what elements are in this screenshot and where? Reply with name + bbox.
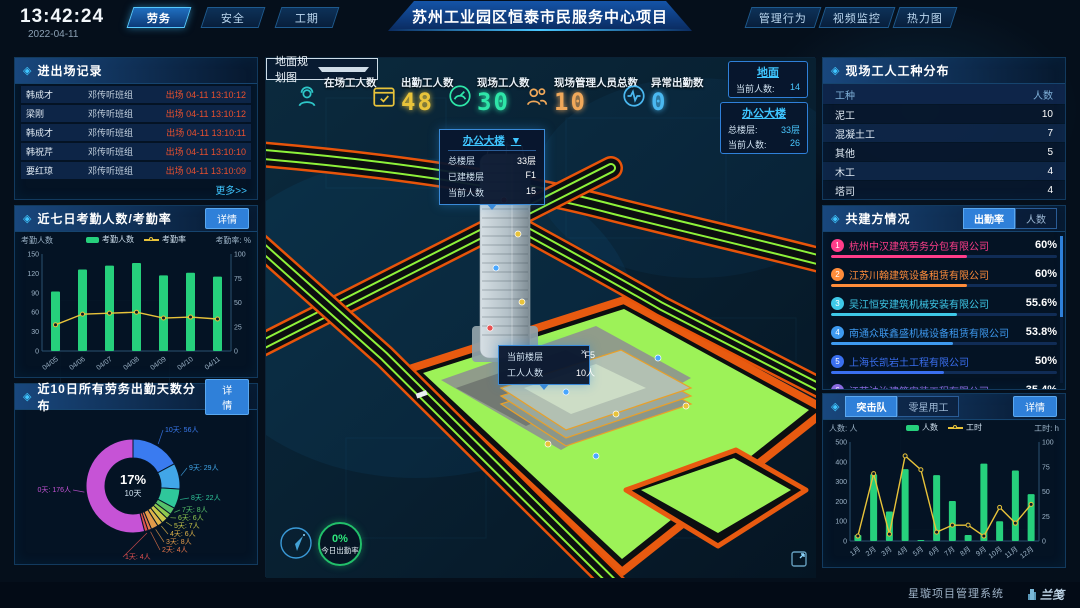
svg-text:100: 100 <box>835 519 847 526</box>
logo-icon <box>1027 588 1037 601</box>
svg-text:04/09: 04/09 <box>149 356 167 372</box>
rank-badge: 4 <box>831 326 844 339</box>
popup-value: F1 <box>525 170 536 183</box>
popup-label: 当前人数 <box>448 186 484 199</box>
svg-text:2天: 4人: 2天: 4人 <box>162 546 188 554</box>
table-row: 其他5 <box>823 143 1065 161</box>
worker-count: 4 <box>993 166 1053 177</box>
fullscreen-icon[interactable] <box>790 550 808 568</box>
building-popup: 办公大楼 ▼ 总楼层33层 已建楼层F1 当前人数15 <box>439 129 545 205</box>
panel-header: ◈ 进出场记录 <box>15 58 257 84</box>
detail-button[interactable]: 详情 <box>205 208 249 229</box>
panel-title: 进出场记录 <box>37 62 102 79</box>
exit-event: 出场 04-11 13:10:12 <box>134 88 246 101</box>
stat-abnormal-attendance: 异常出勤数0 <box>621 75 704 114</box>
company-row[interactable]: 1杭州中汉建筑劳务分包有限公司60% <box>831 235 1057 264</box>
worker-types-panel: ◈ 现场工人工种分布 工种 人数 泥工10 混凝土工7 其他5 木工4 塔司4 <box>822 57 1066 200</box>
tab-assault-team[interactable]: 突击队 <box>845 396 897 417</box>
svg-text:0: 0 <box>1042 539 1046 546</box>
line-swatch-icon <box>948 427 963 429</box>
svg-text:25: 25 <box>234 324 242 331</box>
svg-text:04/05: 04/05 <box>41 356 59 372</box>
svg-text:75: 75 <box>1042 464 1050 471</box>
table-row: 混凝土工7 <box>823 124 1065 142</box>
panel-header: ◈ 现场工人工种分布 <box>823 58 1065 84</box>
stat-site-workers: 现场工人数30 <box>447 75 530 114</box>
logo-text: 兰笺 <box>1040 586 1064 603</box>
worker-type: 其他 <box>835 145 993 160</box>
badge-label: 总楼层: <box>728 123 758 136</box>
column-header: 人数 <box>993 87 1053 102</box>
tooltip-label: 工人人数 <box>507 366 543 379</box>
bar-swatch-icon <box>906 425 919 431</box>
company-row[interactable]: 2江苏川翰建筑设备租赁有限公司60% <box>831 264 1057 293</box>
company-row[interactable]: 3吴江恒安建筑机械安装有限公司55.6% <box>831 293 1057 322</box>
progress-bar <box>831 371 1057 374</box>
attendance-chart-area: 考勤人数 考勤率: % 考勤人数 考勤率 0306090120150025507… <box>15 232 257 379</box>
stat-value: 30 <box>477 90 530 114</box>
svg-text:7天: 8人: 7天: 8人 <box>182 506 208 514</box>
entry-exit-row: 韩祝芹邓传听班组出场 04-11 13:10:10 <box>21 143 251 160</box>
badge-value: 26 <box>790 138 800 151</box>
svg-text:60: 60 <box>31 310 39 317</box>
svg-text:120: 120 <box>27 271 39 278</box>
worker-count: 4 <box>993 185 1053 196</box>
close-icon[interactable]: × <box>581 347 586 357</box>
chart-legend: 人数 工时 <box>823 422 1065 433</box>
diamond-icon: ◈ <box>23 390 31 403</box>
more-link[interactable]: 更多>> <box>15 182 247 197</box>
tab-labor[interactable]: 劳务 <box>127 7 192 28</box>
stat-attendance-workers: 出勤工人数48 <box>371 75 454 114</box>
worker-count: 7 <box>993 128 1053 139</box>
stat-value: 0 <box>651 90 704 114</box>
progress-bar <box>831 342 1057 345</box>
clock-time: 13:42:24 <box>20 6 104 28</box>
table-row: 木工4 <box>823 162 1065 180</box>
svg-text:12月: 12月 <box>1019 545 1036 560</box>
rank-badge: 2 <box>831 268 844 281</box>
panel-header: ◈ 近七日考勤人数/考勤率 详情 <box>15 206 257 232</box>
svg-text:2月: 2月 <box>864 545 878 558</box>
svg-text:11月: 11月 <box>1003 545 1019 560</box>
detail-button[interactable]: 详情 <box>1013 396 1057 417</box>
worker-type: 混凝土工 <box>835 126 993 141</box>
tab-odd-jobs[interactable]: 零星用工 <box>897 396 959 417</box>
legend-item: 考勤率 <box>144 234 186 245</box>
co-builders-panel: ◈ 共建方情况 出勤率 人数 1杭州中汉建筑劳务分包有限公司60% 2江苏川翰建… <box>822 205 1066 390</box>
floor-tooltip: × 当前楼层F5 工人人数10人 <box>498 345 590 385</box>
worker-count: 10 <box>993 109 1053 120</box>
worker-name: 梁刚 <box>26 107 88 120</box>
svg-text:3月: 3月 <box>880 545 894 558</box>
popup-label: 已建楼层 <box>448 170 484 183</box>
company-row[interactable]: 4南通众联鑫盛机械设备租赁有限公司53.8% <box>831 322 1057 351</box>
donut-chart: 10天: 56人9天: 29人8天: 22人7天: 8人6天: 6人5天: 7人… <box>15 410 257 564</box>
svg-text:200: 200 <box>835 499 847 506</box>
svg-text:1月: 1月 <box>849 545 863 558</box>
exit-event: 出场 04-11 13:10:09 <box>134 164 246 177</box>
footer: 星璇项目管理系统 兰笺 <box>0 582 1080 608</box>
attendance-gauge: 0% 今日出勤率 <box>318 522 362 566</box>
tooltip-value: F5 <box>584 350 595 363</box>
company-value: 35.4% <box>1026 384 1057 390</box>
assault-chart-area: 人数: 人 工时: h 人数 工时 0100200300400500025507… <box>823 420 1065 569</box>
worker-type: 泥工 <box>835 107 993 122</box>
worker-name: 韩成才 <box>26 88 88 101</box>
worker-name: 韩祝芹 <box>26 145 88 158</box>
attendance-combo-chart: 0306090120150025507510004/0504/0604/0704… <box>16 246 258 377</box>
work-group: 邓传听班组 <box>88 88 134 101</box>
worker-name: 韩成才 <box>26 126 88 139</box>
tab-video-monitor[interactable]: 视频监控 <box>819 7 896 28</box>
svg-text:5月: 5月 <box>912 545 926 558</box>
company-value: 50% <box>1035 355 1057 367</box>
svg-text:150: 150 <box>27 252 39 259</box>
svg-text:1天: 4人: 1天: 4人 <box>125 553 151 561</box>
topbar: 13:42:24 2022-04-11 劳务 安全 工期 苏州工业园区恒泰市民服… <box>0 0 1080 42</box>
progress-bar <box>831 313 1057 316</box>
chevron-down-icon <box>318 67 369 72</box>
panel-header: ◈ 近10日所有劳务出勤天数分布 详情 <box>15 384 257 410</box>
people-icon <box>524 83 550 109</box>
line-swatch-icon <box>144 239 159 241</box>
gauge-label: 今日出勤率 <box>321 545 359 556</box>
compass-icon[interactable] <box>279 526 313 560</box>
svg-text:75: 75 <box>234 276 242 283</box>
svg-text:04/06: 04/06 <box>68 356 86 372</box>
company-name: 上海长凯岩土工程有限公司 <box>849 354 1029 369</box>
company-value: 53.8% <box>1026 326 1057 338</box>
company-value: 60% <box>1035 239 1057 251</box>
tooltip-value: 10人 <box>576 366 595 379</box>
panel-title: 共建方情况 <box>845 210 910 227</box>
svg-text:9天: 29人: 9天: 29人 <box>189 464 219 472</box>
progress-bar <box>831 284 1057 287</box>
legend-item: 人数 <box>906 422 938 433</box>
svg-text:90: 90 <box>31 290 39 297</box>
badge-value: 33层 <box>781 123 800 136</box>
scrollbar <box>1060 236 1063 383</box>
svg-text:50: 50 <box>1042 489 1050 496</box>
company-value: 55.6% <box>1026 297 1057 309</box>
tab-label: 工期 <box>295 10 319 26</box>
panel-header: ◈ 突击队 零星用工 详情 <box>823 394 1065 420</box>
entry-exit-list: 韩成才邓传听班组出场 04-11 13:10:12 梁刚邓传听班组出场 04-1… <box>15 86 257 197</box>
tab-management-behavior[interactable]: 管理行为 <box>745 7 822 28</box>
company-row[interactable]: 5上海长凯岩土工程有限公司50% <box>831 351 1057 380</box>
badge-label: 当前人数: <box>728 138 767 151</box>
svg-text:500: 500 <box>835 440 847 447</box>
calendar-check-icon <box>371 83 397 109</box>
stat-label: 在场工人数 <box>324 75 377 90</box>
page-title-text: 苏州工业园区恒泰市民服务中心项目 <box>412 6 668 27</box>
legend-label: 工时 <box>966 423 982 432</box>
ground-badge[interactable]: 地面 当前人数:14 <box>728 61 808 98</box>
company-row[interactable]: 6江苏法诒建筑安装工程有限公司35.4% <box>831 380 1057 390</box>
tooltip-label: 当前楼层 <box>507 350 543 363</box>
page-title: 苏州工业园区恒泰市民服务中心项目 <box>388 1 692 31</box>
map-area: 地面规划图 在场工人数 出勤工人数48 现场工人数30 现场管理人员总数10 异… <box>265 57 815 577</box>
brand-text: 星璇项目管理系统 <box>908 585 1004 601</box>
badge-title: 办公大楼 <box>728 105 800 121</box>
svg-text:50: 50 <box>234 300 242 307</box>
clock-date: 2022-04-11 <box>28 29 104 40</box>
svg-text:04/08: 04/08 <box>122 356 140 372</box>
entry-exit-row: 韩成才邓传听班组出场 04-11 13:10:12 <box>21 86 251 103</box>
worker-type: 木工 <box>835 164 993 179</box>
tab-label: 管理行为 <box>759 10 807 26</box>
donut-chart-area: 10天: 56人9天: 29人8天: 22人7天: 8人6天: 6人5天: 7人… <box>15 410 257 566</box>
table-row: 泥工10 <box>823 105 1065 123</box>
badge-label: 当前人数: <box>736 82 775 95</box>
rank-badge: 1 <box>831 239 844 252</box>
svg-text:0: 0 <box>35 349 39 356</box>
tab-headcount[interactable]: 人数 <box>1015 208 1057 229</box>
svg-text:6天: 6人: 6天: 6人 <box>178 514 204 522</box>
svg-text:10天: 56人: 10天: 56人 <box>165 426 198 434</box>
tab-safety[interactable]: 安全 <box>201 7 266 28</box>
svg-text:6月: 6月 <box>927 545 941 558</box>
company-list: 1杭州中汉建筑劳务分包有限公司60% 2江苏川翰建筑设备租赁有限公司60% 3吴… <box>823 232 1065 390</box>
svg-text:8天: 22人: 8天: 22人 <box>191 494 221 502</box>
rank-badge: 6 <box>831 384 844 391</box>
legend-label: 考勤率 <box>162 235 186 244</box>
work-group: 邓传听班组 <box>88 164 134 177</box>
attendance-7day-panel: ◈ 近七日考勤人数/考勤率 详情 考勤人数 考勤率: % 考勤人数 考勤率 03… <box>14 205 258 378</box>
exit-event: 出场 04-11 13:10:10 <box>134 145 246 158</box>
legend-item: 工时 <box>948 422 982 433</box>
gauge-value: 0% <box>332 533 348 545</box>
tab-label: 视频监控 <box>833 10 881 26</box>
svg-text:8月: 8月 <box>959 545 973 558</box>
table-header-row: 工种 人数 <box>823 84 1065 104</box>
assault-team-panel: ◈ 突击队 零星用工 详情 人数: 人 工时: h 人数 工时 01002003… <box>822 393 1066 568</box>
panel-title: 近10日所有劳务出勤天数分布 <box>37 380 205 414</box>
rank-badge: 3 <box>831 297 844 310</box>
company-name: 南通众联鑫盛机械设备租赁有限公司 <box>849 325 1020 340</box>
svg-text:100: 100 <box>1042 440 1054 447</box>
svg-text:300: 300 <box>835 479 847 486</box>
svg-text:400: 400 <box>835 459 847 466</box>
svg-text:25: 25 <box>1042 514 1050 521</box>
worker-count: 5 <box>993 147 1053 158</box>
panel-title: 近七日考勤人数/考勤率 <box>37 210 171 227</box>
assault-combo-chart: 010020030040050002550751001月2月3月4月5月6月7月… <box>824 434 1066 567</box>
work-group: 邓传听班组 <box>88 126 134 139</box>
badge-value: 14 <box>790 82 800 95</box>
company-name: 江苏川翰建筑设备租赁有限公司 <box>849 267 1029 282</box>
chart-legend: 考勤人数 考勤率 <box>15 234 257 245</box>
gauge-icon <box>447 83 473 109</box>
svg-text:30: 30 <box>31 329 39 336</box>
svg-text:0: 0 <box>234 349 238 356</box>
svg-text:3天: 8人: 3天: 8人 <box>166 538 192 546</box>
worker-name: 要红琼 <box>26 164 88 177</box>
diamond-icon: ◈ <box>831 400 839 413</box>
svg-text:10月: 10月 <box>987 545 1004 560</box>
legend-item: 考勤人数 <box>86 234 134 245</box>
entry-exit-row: 梁刚邓传听班组出场 04-11 13:10:12 <box>21 105 251 122</box>
attendance-days-distribution-panel: ◈ 近10日所有劳务出勤天数分布 详情 10天: 56人9天: 29人8天: 2… <box>14 383 258 565</box>
badge-title: 地面 <box>736 64 800 80</box>
tab-label: 安全 <box>221 10 245 26</box>
tab-attendance-rate[interactable]: 出勤率 <box>963 208 1015 229</box>
exit-event: 出场 04-11 13:10:11 <box>134 126 246 139</box>
company-name: 江苏法诒建筑安装工程有限公司 <box>849 383 1020 391</box>
svg-text:5天: 7人: 5天: 7人 <box>174 522 200 530</box>
bar-swatch-icon <box>86 237 99 243</box>
panel-title: 现场工人工种分布 <box>845 62 949 79</box>
diamond-icon: ◈ <box>23 212 31 225</box>
tab-heatmap[interactable]: 热力图 <box>893 7 958 28</box>
scrollbar-thumb[interactable] <box>1060 236 1063 317</box>
work-group: 邓传听班组 <box>88 145 134 158</box>
svg-text:7月: 7月 <box>943 545 957 558</box>
pulse-icon <box>621 83 647 109</box>
svg-text:0: 0 <box>843 539 847 546</box>
svg-text:4天: 6人: 4天: 6人 <box>170 530 196 538</box>
brand-logo: 兰笺 <box>1027 586 1064 603</box>
entry-exit-panel: ◈ 进出场记录 韩成才邓传听班组出场 04-11 13:10:12 梁刚邓传听班… <box>14 57 258 200</box>
exit-event: 出场 04-11 13:10:12 <box>134 107 246 120</box>
panel-header: ◈ 共建方情况 出勤率 人数 <box>823 206 1065 232</box>
tab-label: 劳务 <box>147 10 171 26</box>
diamond-icon: ◈ <box>23 64 31 77</box>
stat-value: 48 <box>401 90 454 114</box>
worker-types-table: 工种 人数 泥工10 混凝土工7 其他5 木工4 塔司4 <box>823 84 1065 199</box>
svg-text:0天: 176人: 0天: 176人 <box>38 486 71 494</box>
entry-exit-row: 要红琼邓传听班组出场 04-11 13:10:09 <box>21 162 251 179</box>
svg-text:04/10: 04/10 <box>176 356 194 372</box>
rank-badge: 5 <box>831 355 844 368</box>
svg-text:04/11: 04/11 <box>204 356 222 372</box>
worker-type: 塔司 <box>835 183 993 198</box>
svg-text:9月: 9月 <box>975 545 989 558</box>
progress-bar <box>831 255 1057 258</box>
popup-label: 总楼层 <box>448 154 475 167</box>
popup-title: 办公大楼 <box>463 133 505 148</box>
company-value: 60% <box>1035 268 1057 280</box>
popup-value: 33层 <box>517 154 536 167</box>
tab-schedule[interactable]: 工期 <box>275 7 340 28</box>
legend-label: 考勤人数 <box>102 235 134 244</box>
company-name: 杭州中汉建筑劳务分包有限公司 <box>849 238 1029 253</box>
svg-text:4月: 4月 <box>896 545 910 558</box>
diamond-icon: ◈ <box>831 212 839 225</box>
column-header: 工种 <box>835 87 993 102</box>
svg-text:04/07: 04/07 <box>95 356 113 372</box>
svg-text:100: 100 <box>234 252 246 259</box>
popup-value: 15 <box>526 186 536 199</box>
worker-icon <box>294 83 320 109</box>
office-building-badge[interactable]: 办公大楼 总楼层:33层 当前人数:26 <box>720 102 808 154</box>
company-name: 吴江恒安建筑机械安装有限公司 <box>849 296 1020 311</box>
table-row: 塔司4 <box>823 181 1065 199</box>
clock: 13:42:24 2022-04-11 <box>20 6 104 40</box>
tab-label: 热力图 <box>907 10 943 26</box>
work-group: 邓传听班组 <box>88 107 134 120</box>
entry-exit-row: 韩成才邓传听班组出场 04-11 13:10:11 <box>21 124 251 141</box>
legend-label: 人数 <box>922 423 938 432</box>
diamond-icon: ◈ <box>831 64 839 77</box>
stat-onsite-workers: 在场工人数 <box>294 75 377 109</box>
chevron-down-icon[interactable]: ▼ <box>511 135 521 147</box>
